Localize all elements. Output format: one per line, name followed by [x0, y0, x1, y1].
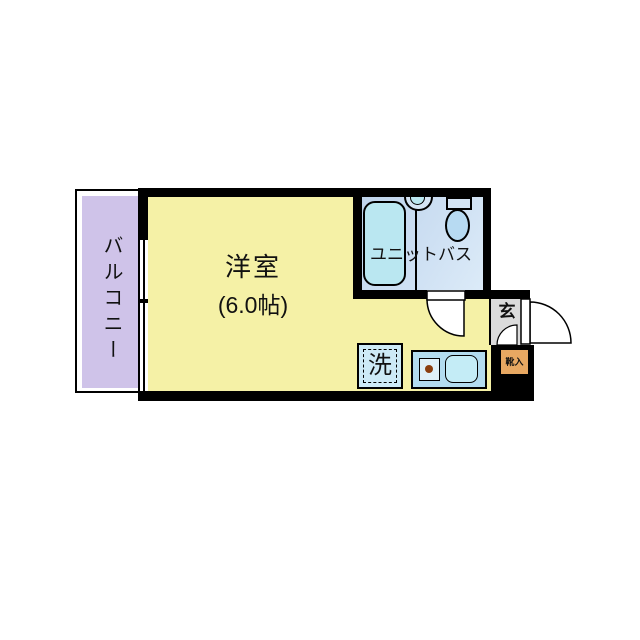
shoe-cabinet-label: 靴入 [500, 349, 529, 375]
entrance-step-line [489, 299, 491, 345]
floor-plan: バルコニー 洋室 (6.0帖) ユニットバス 玄 靴入 洗 [0, 0, 640, 640]
toilet-bowl [445, 209, 470, 242]
wall-bath-bottom-left [353, 290, 427, 299]
toilet-tank [446, 197, 472, 210]
wall-bottom [138, 391, 534, 401]
front-door-leaf [521, 299, 530, 344]
wall-entrance-top [465, 290, 530, 299]
washing-machine-label: 洗 [357, 343, 403, 389]
room-label: 洋室 [193, 252, 313, 282]
kitchen-counter [411, 350, 487, 389]
stove-burner [419, 358, 440, 381]
window-glass-line-inner [143, 240, 145, 391]
window-glass-line-outer [138, 240, 140, 391]
wall-top [138, 188, 491, 197]
window-meeting-tick [138, 299, 148, 303]
front-door-arc [530, 302, 571, 343]
entrance-label: 玄 [494, 300, 520, 322]
room-size-label: (6.0帖) [183, 291, 323, 319]
balcony-label: バルコニー [96, 214, 126, 386]
stove-burner-dot [425, 365, 433, 373]
kitchen-sink [445, 355, 478, 383]
wall-left-upper [138, 197, 148, 240]
unit-bath-label: ユニットバス [356, 244, 486, 264]
